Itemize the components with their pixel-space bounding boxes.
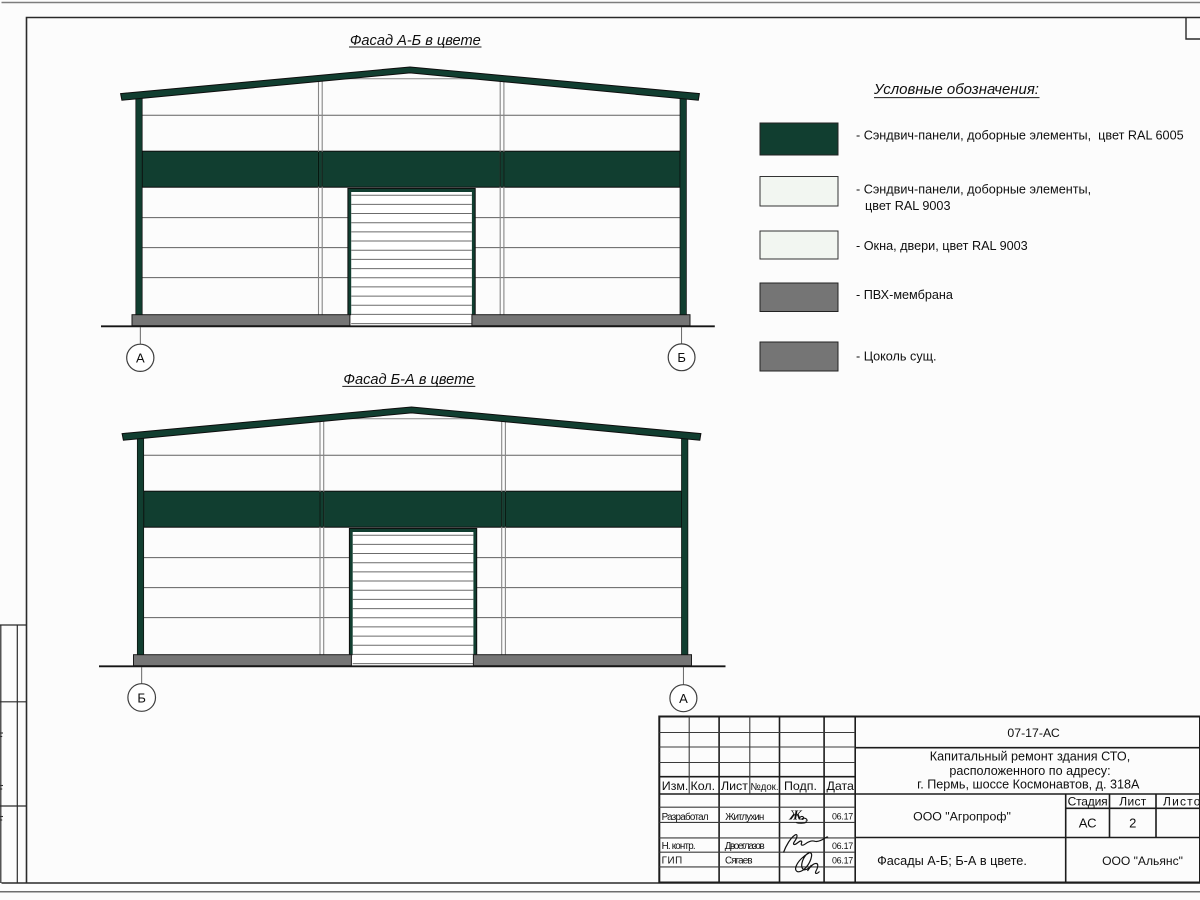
svg-text:Кол.: Кол.	[691, 779, 716, 793]
svg-text:ГИП: ГИП	[662, 856, 683, 867]
svg-text:06.17: 06.17	[832, 811, 853, 821]
svg-text:- Цоколь сущ.: - Цоколь сущ.	[856, 350, 937, 364]
svg-text:Подп.: Подп.	[784, 779, 817, 793]
svg-text:Условные обозначения:: Условные обозначения:	[873, 81, 1039, 98]
svg-text:Б: Б	[677, 350, 686, 365]
svg-text:07-17-АС: 07-17-АС	[1007, 726, 1059, 740]
svg-text:- Сэндвич-панели, доборные эле: - Сэндвич-панели, доборные элементы,	[856, 183, 1091, 197]
svg-text:А: А	[679, 691, 688, 706]
svg-text:Разработал: Разработал	[662, 812, 709, 823]
svg-text:цвет RAL 9003: цвет RAL 9003	[865, 199, 950, 213]
svg-text:ООО "Альянс": ООО "Альянс"	[1102, 854, 1183, 868]
svg-text:Житлухин: Житлухин	[725, 812, 764, 823]
svg-text:Б: Б	[137, 690, 146, 705]
svg-text:- Сэндвич-панели, доборные эле: - Сэндвич-панели, доборные элементы, цве…	[856, 129, 1184, 143]
svg-text:Листов: Листов	[1163, 795, 1200, 809]
svg-text:расположенного по адресу:: расположенного по адресу:	[949, 764, 1110, 778]
svg-text:Лист: Лист	[721, 779, 748, 793]
svg-text:Фасады А-Б; Б-А в цвете.: Фасады А-Б; Б-А в цвете.	[877, 854, 1027, 868]
svg-text:Фасад Б-А в цвете: Фасад Б-А в цвете	[343, 372, 474, 388]
svg-text:Двоеглазов: Двоеглазов	[725, 841, 765, 852]
svg-text:Стадия: Стадия	[1068, 795, 1108, 809]
svg-text:Сягаев: Сягаев	[725, 856, 753, 867]
svg-text:- Окна, двери, цвет RAL 9003: - Окна, двери, цвет RAL 9003	[856, 239, 1028, 253]
svg-text:Лист: Лист	[1119, 795, 1147, 809]
svg-text:Н. контр.: Н. контр.	[662, 841, 696, 852]
svg-text:Фасад А-Б в цвете: Фасад А-Б в цвете	[350, 33, 481, 49]
svg-text:Изм.: Изм.	[662, 779, 689, 793]
svg-text:Дата: Дата	[827, 779, 855, 793]
svg-text:№док.: №док.	[751, 782, 779, 793]
svg-text:Капитальный ремонт здания СТО,: Капитальный ремонт здания СТО,	[930, 750, 1130, 764]
svg-text:ООО "Агропроф": ООО "Агропроф"	[913, 810, 1011, 824]
svg-text:Ж: Ж	[789, 808, 803, 823]
svg-text:06.17: 06.17	[832, 855, 853, 865]
svg-text:- ПВХ-мембрана: - ПВХ-мембрана	[856, 288, 954, 302]
svg-text:А: А	[136, 351, 145, 366]
svg-text:АС: АС	[1079, 815, 1097, 830]
svg-text:06.17: 06.17	[832, 841, 853, 851]
svg-text:г. Пермь, шоссе Космонавтов, д: г. Пермь, шоссе Космонавтов, д. 318А	[917, 777, 1140, 791]
svg-text:2: 2	[1129, 815, 1136, 830]
